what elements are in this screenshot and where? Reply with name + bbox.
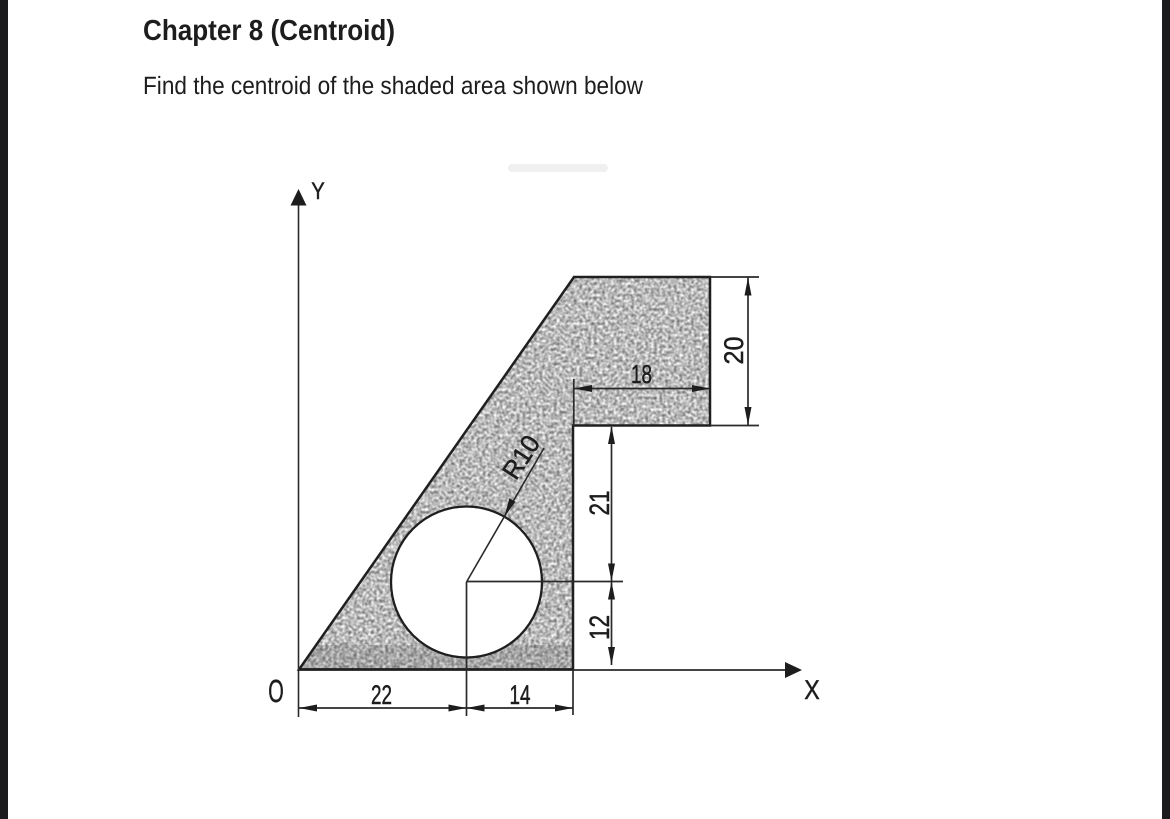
svg-text:18: 18: [631, 359, 652, 389]
svg-text:22: 22: [371, 680, 392, 710]
svg-text:Find the centroid of the shade: Find the centroid of the shaded area sho…: [143, 72, 644, 100]
svg-text:O: O: [268, 673, 284, 709]
svg-text:20: 20: [719, 337, 749, 365]
svg-text:Y: Y: [311, 178, 325, 205]
svg-text:14: 14: [510, 680, 531, 710]
svg-text:X: X: [804, 675, 820, 705]
svg-text:12: 12: [584, 615, 615, 640]
svg-text:Chapter 8 (Centroid): Chapter 8 (Centroid): [143, 15, 395, 47]
svg-text:21: 21: [584, 491, 615, 516]
